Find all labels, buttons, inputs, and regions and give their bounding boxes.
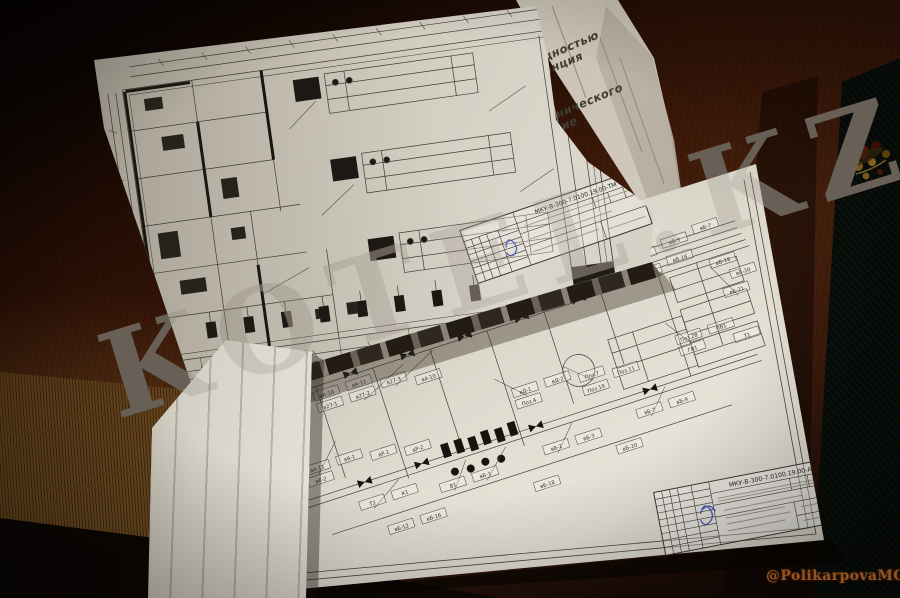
attribution-text: @PolikarpovaMG2020 [766, 568, 900, 584]
photo-of-blueprints: щностью танция нического ние [0, 0, 900, 598]
